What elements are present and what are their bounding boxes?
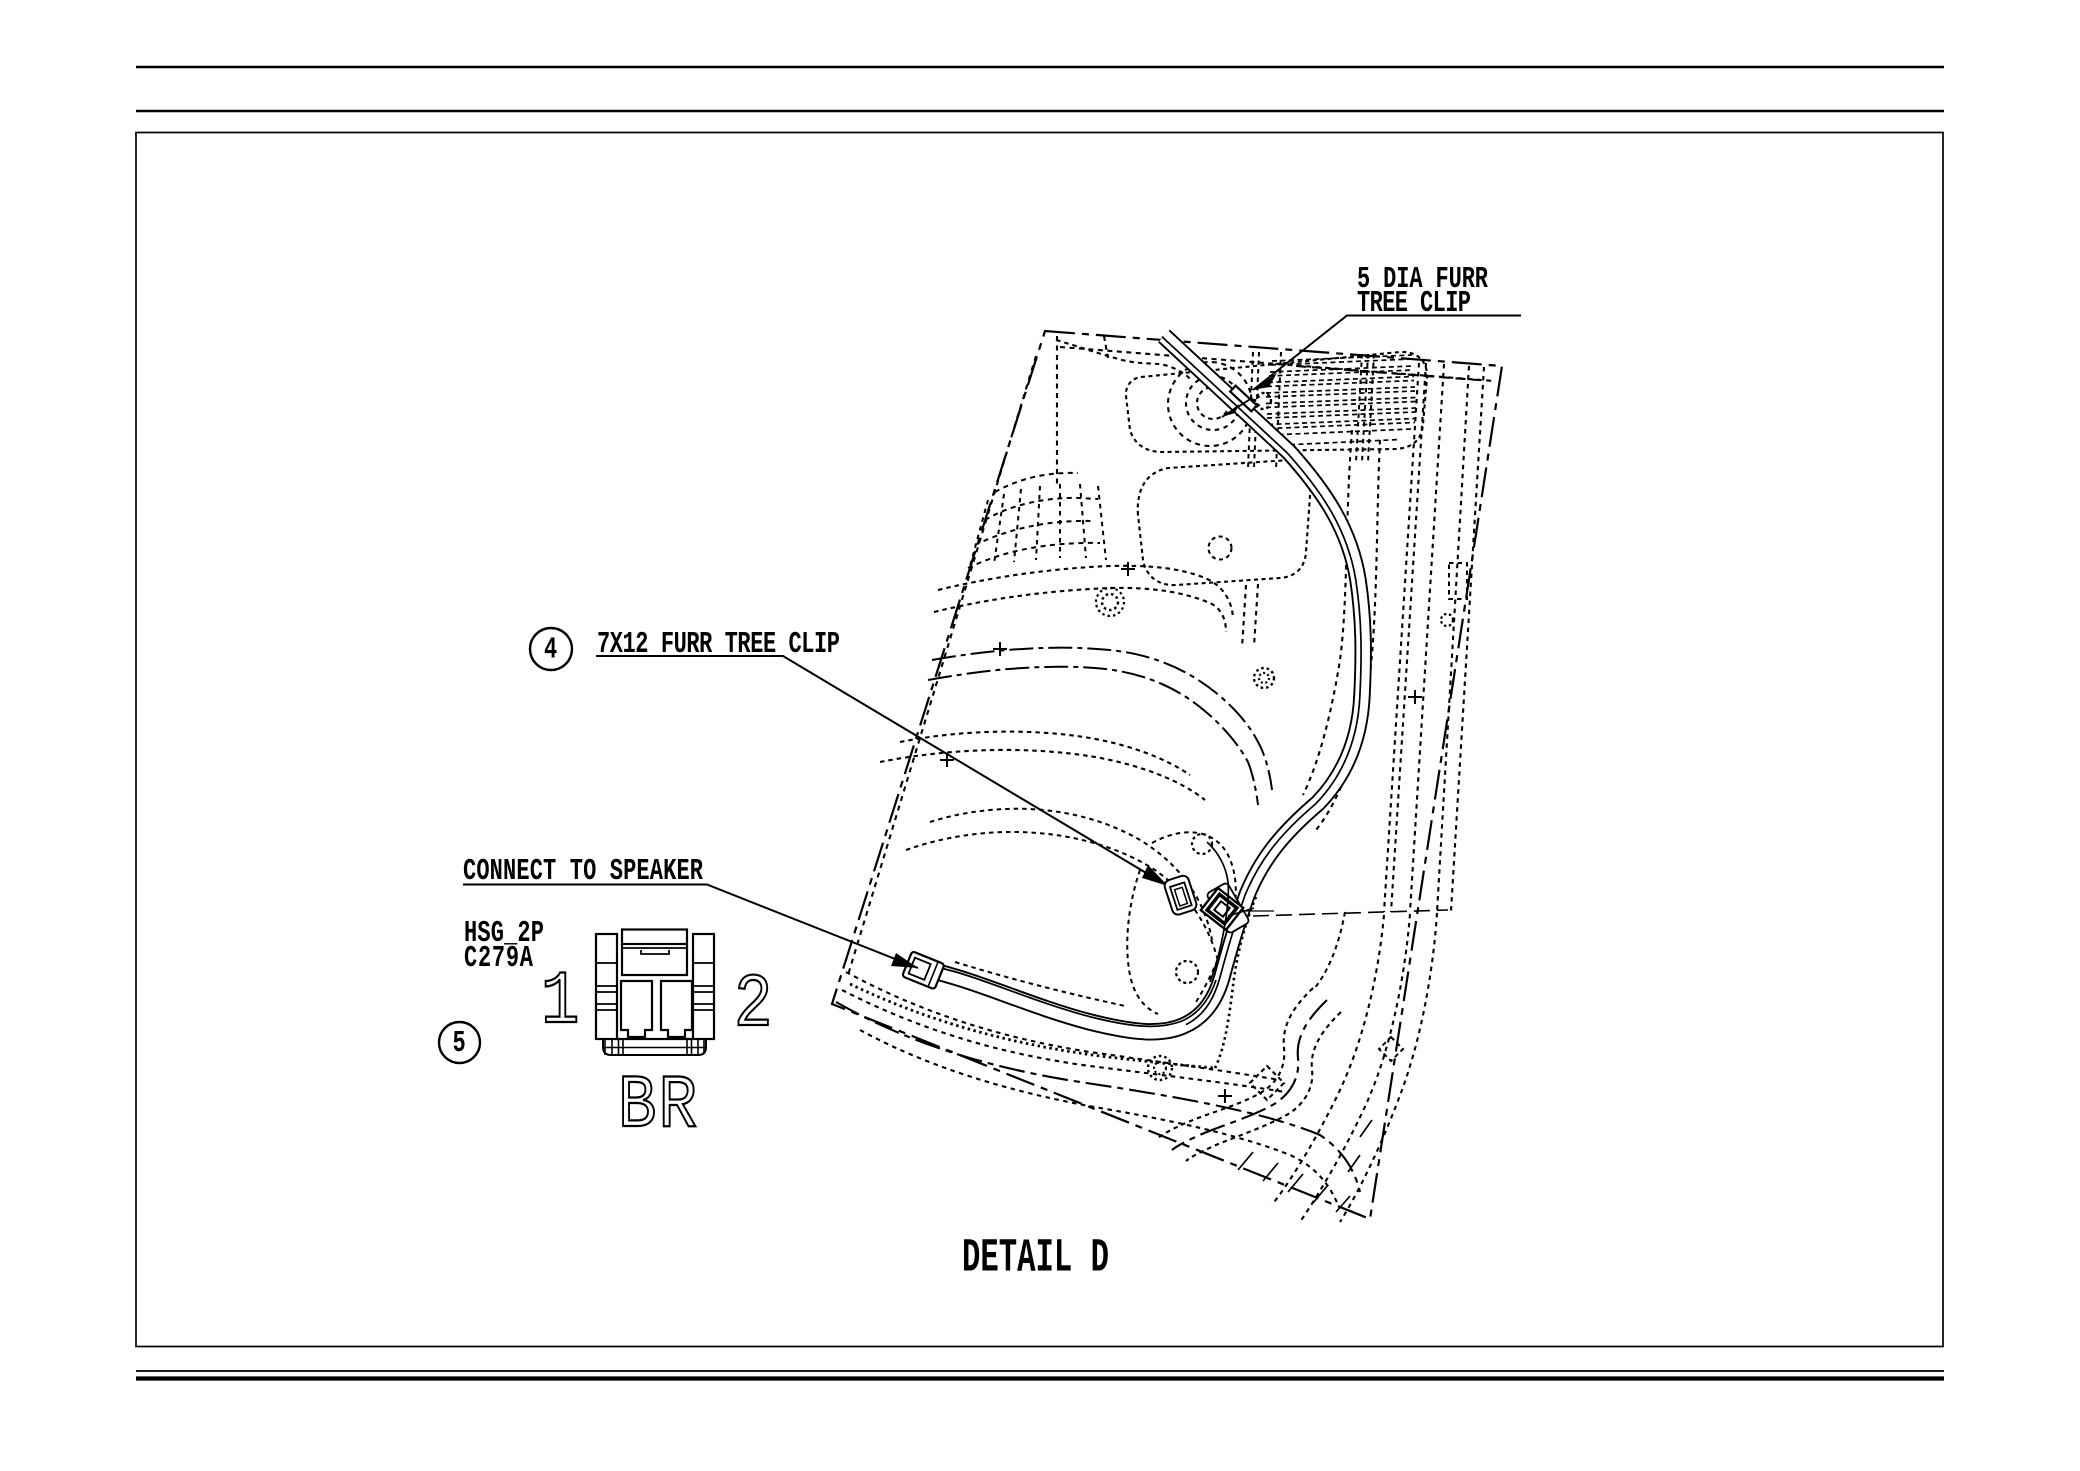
svg-text:BR: BR [618,1064,697,1149]
svg-text:1: 1 [541,960,579,1045]
svg-text:4: 4 [544,632,557,666]
svg-text:CONNECT TO SPEAKER: CONNECT TO SPEAKER [463,854,703,888]
svg-text:5: 5 [453,1026,466,1060]
svg-text:2: 2 [734,963,772,1048]
svg-text:DETAIL D: DETAIL D [962,1233,1109,1286]
svg-text:C279A: C279A [464,941,533,975]
